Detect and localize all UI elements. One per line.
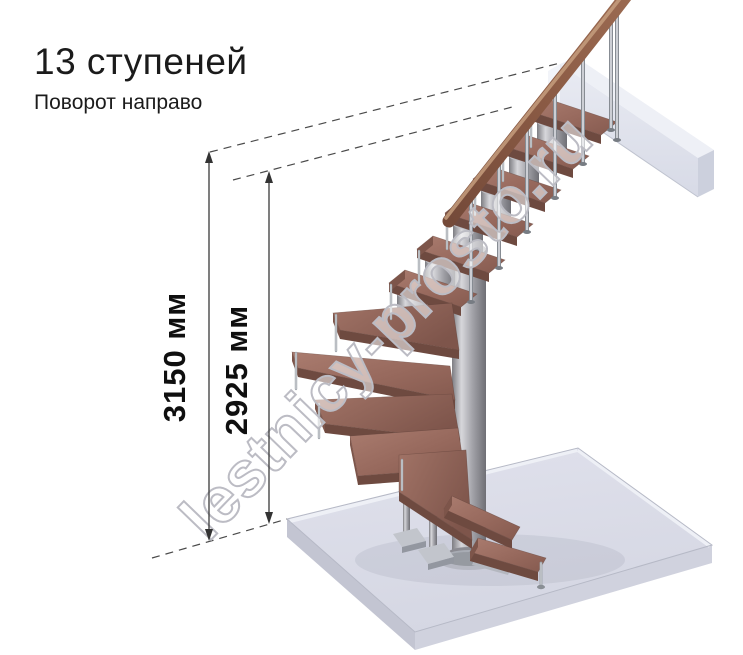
beam-right-end xyxy=(698,150,714,197)
extension-line-lower xyxy=(233,106,516,180)
dimension-label-2925: 2925 мм xyxy=(219,305,254,435)
dimension-label-3150: 3150 мм xyxy=(157,292,192,422)
arrow-up-icon xyxy=(205,151,213,163)
stair-diagram-page: lestnicy-prosto.ru 3150 мм 2925 мм 13 ст… xyxy=(0,0,743,655)
page-subtitle: Поворот направо xyxy=(34,91,202,115)
arrow-up-icon xyxy=(265,171,273,183)
page-title: 13 ступеней xyxy=(34,42,248,83)
arrow-down-icon xyxy=(265,512,273,524)
